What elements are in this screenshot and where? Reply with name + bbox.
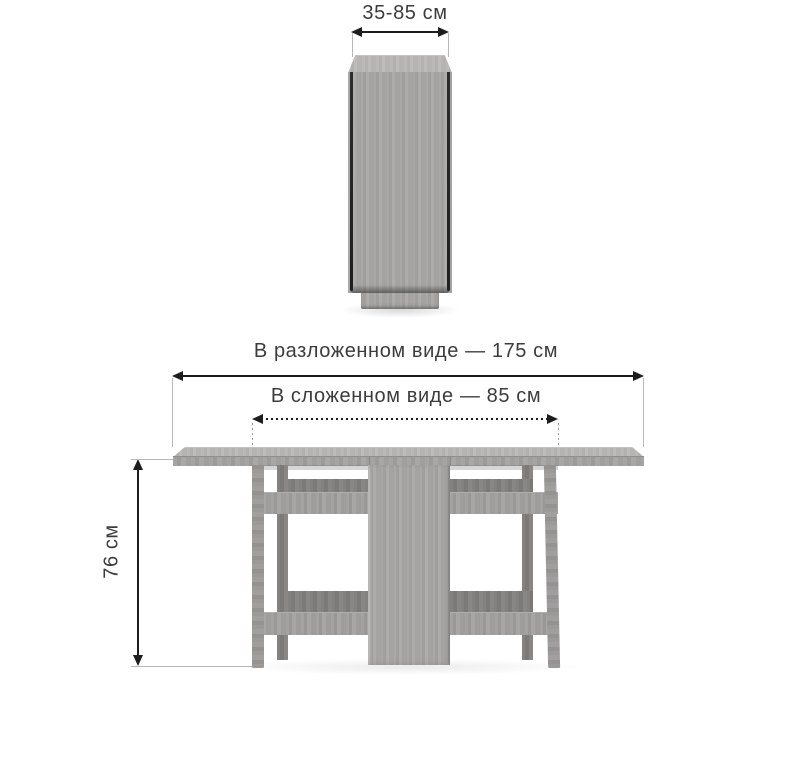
left-upper-back-rail	[277, 479, 368, 493]
right-lower-back-rail	[450, 591, 533, 612]
left-lower-front-rail	[256, 612, 368, 635]
extension-line	[352, 33, 353, 57]
arrowhead-up-icon	[133, 459, 143, 470]
left-lower-back-rail	[277, 591, 368, 612]
product-dimension-diagram: 35-85 см В разложенном виде — 175 см В с…	[0, 0, 800, 762]
left-outer-leg	[252, 465, 264, 668]
right-upper-front-rail	[450, 492, 558, 514]
arrowhead-left-icon	[252, 414, 263, 424]
unfolded-width-dimension-line	[176, 375, 640, 377]
folded-depth-label: 35-85 см	[310, 2, 500, 25]
tabletop-leaf-seam	[369, 456, 370, 465]
right-upper-back-rail	[450, 479, 533, 493]
folded-table-floor-shadow	[340, 302, 460, 318]
height-dimension-line	[137, 463, 139, 663]
unfolded-table-floor-shadow	[233, 659, 583, 675]
arrowhead-left-icon	[172, 371, 183, 381]
extension-line	[172, 378, 173, 447]
folded-leaf-bottom-shade	[350, 285, 450, 293]
extension-line-dotted	[558, 423, 559, 447]
arrowhead-down-icon	[133, 655, 143, 666]
folded-tabletop-surface	[348, 55, 452, 73]
extension-line	[131, 459, 173, 460]
arrowhead-right-icon	[547, 414, 558, 424]
folded-width-dimension-line	[256, 418, 554, 420]
folded-width-label: В сложенном виде — 85 см	[206, 385, 606, 408]
folded-table-figure	[348, 55, 452, 318]
folded-table-body	[348, 72, 452, 293]
right-lower-front-rail	[450, 612, 558, 635]
extension-line	[448, 33, 449, 57]
unfolded-table-figure	[173, 447, 644, 678]
unfolded-width-label: В разложенном виде — 175 см	[206, 340, 606, 363]
height-label: 76 см	[101, 502, 124, 602]
extension-line-dotted	[252, 423, 253, 447]
folded-depth-dimension-line	[355, 31, 445, 33]
tabletop-leaf-seam	[450, 456, 451, 465]
left-upper-front-rail	[256, 492, 368, 514]
folded-leaf-left-edge	[350, 72, 353, 291]
pedestal-panel	[368, 465, 450, 665]
extension-line	[643, 378, 644, 447]
folded-leaf-right-edge	[447, 72, 450, 291]
